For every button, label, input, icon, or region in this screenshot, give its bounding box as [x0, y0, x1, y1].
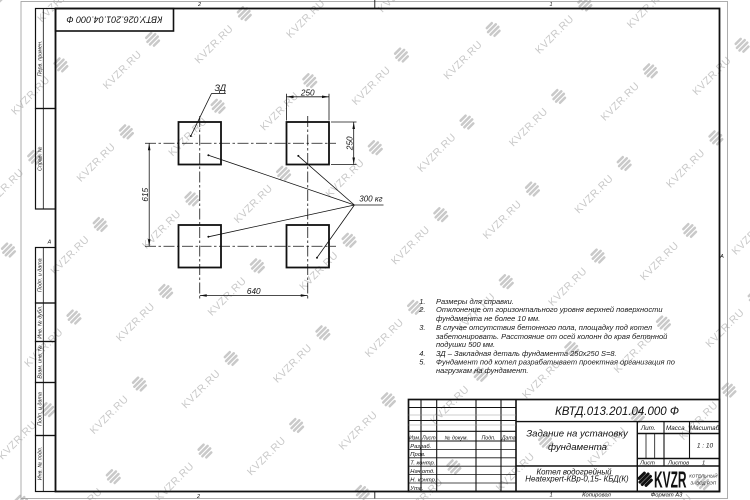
svg-text:Изм.: Изм. [409, 435, 420, 441]
svg-text:Копировал: Копировал [582, 493, 612, 499]
svg-text:Инв. № подл.: Инв. № подл. [37, 447, 43, 480]
svg-text:KVZR.RU: KVZR.RU [0, 419, 40, 463]
svg-text:Задание на установку: Задание на установку [526, 429, 629, 440]
svg-text:В случае отсутствия бетонного: В случае отсутствия бетонного пола, площ… [436, 323, 653, 332]
svg-text:KVZR.RU: KVZR.RU [546, 265, 590, 309]
svg-text:250: 250 [345, 136, 354, 151]
svg-text:KVZR.RU: KVZR.RU [258, 90, 302, 134]
svg-text:KVZR.RU: KVZR.RU [664, 147, 708, 191]
svg-text:KVZR.RU: KVZR.RU [101, 48, 145, 92]
svg-text:KVZR.RU: KVZR.RU [88, 393, 132, 437]
svg-text:ЗД: ЗД [215, 83, 227, 93]
svg-text:Т. контр.: Т. контр. [410, 461, 435, 467]
svg-text:Лит.: Лит. [640, 425, 656, 432]
svg-text:Перв. примен.: Перв. примен. [37, 41, 43, 77]
svg-text:KVZR.RU: KVZR.RU [441, 39, 485, 83]
svg-text:Справ. №: Справ. № [37, 146, 43, 171]
svg-text:Подп.: Подп. [481, 435, 495, 441]
svg-text:KVZR.RU: KVZR.RU [179, 368, 223, 412]
svg-text:KVZR.RU: KVZR.RU [572, 173, 616, 217]
svg-text:5.: 5. [419, 357, 425, 366]
svg-text:KVZR.RU: KVZR.RU [507, 106, 551, 150]
svg-text:Лист: Лист [639, 460, 655, 466]
svg-text:Инв. № дубл.: Инв. № дубл. [37, 306, 43, 339]
svg-text:KVZR.RU: KVZR.RU [206, 275, 250, 319]
svg-text:KVZR.RU: KVZR.RU [363, 316, 407, 360]
svg-text:KVZR.RU: KVZR.RU [730, 214, 750, 258]
svg-text:Утв.: Утв. [409, 486, 423, 492]
svg-text:фундамента не более 10 мм.: фундамента не более 10 мм. [436, 314, 540, 323]
svg-text:KVZR.RU: KVZR.RU [625, 0, 669, 31]
svg-text:подушки 500 мм.: подушки 500 мм. [436, 340, 495, 349]
svg-text:А: А [47, 240, 52, 246]
svg-text:KVZR.RU: KVZR.RU [61, 486, 105, 500]
svg-text:Отклонение от горизонтального: Отклонение от горизонтального уровня вер… [436, 305, 663, 314]
svg-text:2.: 2. [418, 305, 425, 314]
svg-text:Н. контр.: Н. контр. [410, 477, 436, 483]
svg-text:Масса: Масса [666, 425, 685, 432]
svg-text:250: 250 [300, 88, 315, 97]
svg-text:KVZR.RU: KVZR.RU [415, 131, 459, 175]
svg-text:KVZR.RU: KVZR.RU [703, 307, 747, 351]
svg-text:KVZR.RU: KVZR.RU [481, 198, 525, 242]
svg-text:KVZR.RU: KVZR.RU [337, 409, 381, 453]
svg-text:KVZR.RU: KVZR.RU [533, 13, 577, 57]
svg-text:KVZR.RU: KVZR.RU [22, 326, 66, 370]
svg-text:KVZR.RU: KVZR.RU [9, 74, 53, 118]
svg-text:KVZR.RU: KVZR.RU [232, 182, 276, 226]
svg-text:1: 1 [549, 2, 552, 8]
svg-text:Пров.: Пров. [410, 452, 425, 458]
svg-text:300 кг: 300 кг [359, 194, 382, 203]
svg-text:KVZR.RU: KVZR.RU [389, 224, 433, 268]
svg-text:KVZR.RU: KVZR.RU [153, 460, 197, 500]
svg-text:Масштаб: Масштаб [690, 424, 720, 432]
svg-text:2: 2 [196, 494, 200, 500]
svg-text:Формат А3: Формат А3 [651, 493, 683, 499]
svg-text:Heatexpert-КВр-0,15- КБД(К): Heatexpert-КВр-0,15- КБД(К) [525, 475, 629, 484]
svg-text:КОТЕЛЬНЫЙ: КОТЕЛЬНЫЙ [689, 471, 718, 478]
svg-text:3.: 3. [419, 323, 425, 332]
svg-text:KVZR.RU: KVZR.RU [297, 249, 341, 293]
svg-text:Взам. инв. №: Взам. инв. № [37, 345, 43, 379]
svg-text:KVZR.RU: KVZR.RU [245, 435, 289, 479]
svg-text:ЗАВОД РЭП: ЗАВОД РЭП [690, 481, 717, 486]
svg-text:KVZR.RU: KVZR.RU [284, 0, 328, 41]
svg-text:KVZR: KVZR [654, 466, 687, 492]
svg-text:Подп. и дата: Подп. и дата [37, 258, 43, 292]
svg-text:фундамента: фундамента [548, 442, 607, 453]
svg-text:Подп. и дата: Подп. и дата [37, 392, 43, 426]
svg-text:KVZR.RU: KVZR.RU [114, 301, 158, 345]
svg-text:640: 640 [247, 287, 261, 296]
svg-text:1: 1 [702, 460, 705, 466]
svg-text:KVZR.RU: KVZR.RU [140, 208, 184, 252]
svg-text:нагрузкам на фундамент.: нагрузкам на фундамент. [436, 366, 528, 375]
svg-text:KVZR.RU: KVZR.RU [599, 80, 643, 124]
svg-text:KVZR.RU: KVZR.RU [638, 240, 682, 284]
svg-text:KVZR.RU: KVZR.RU [75, 141, 119, 185]
svg-text:2: 2 [197, 2, 201, 8]
svg-text:А: А [719, 254, 724, 260]
svg-text:1: 1 [550, 493, 553, 499]
svg-text:Разраб.: Разраб. [410, 444, 431, 450]
svg-text:KVZR.RU: KVZR.RU [192, 23, 236, 67]
svg-text:№ докум.: № докум. [445, 435, 468, 441]
svg-text:Дата: Дата [501, 435, 516, 441]
svg-text:KVZR.RU: KVZR.RU [376, 0, 420, 15]
svg-text:KVZR.RU: KVZR.RU [271, 342, 315, 386]
svg-text:Нач.отд.: Нач.отд. [410, 469, 434, 475]
svg-text:615: 615 [141, 187, 150, 201]
svg-text:КВТУ.026.201.04.000 Ф: КВТУ.026.201.04.000 Ф [67, 15, 163, 25]
svg-text:КВТД.013.201.04.000 Ф: КВТД.013.201.04.000 Ф [555, 406, 679, 418]
svg-text:KVZR.RU: KVZR.RU [0, 167, 26, 211]
svg-text:1 : 10: 1 : 10 [697, 443, 714, 450]
svg-text:KVZR.RU: KVZR.RU [350, 64, 394, 108]
svg-text:Лист: Лист [421, 435, 436, 441]
